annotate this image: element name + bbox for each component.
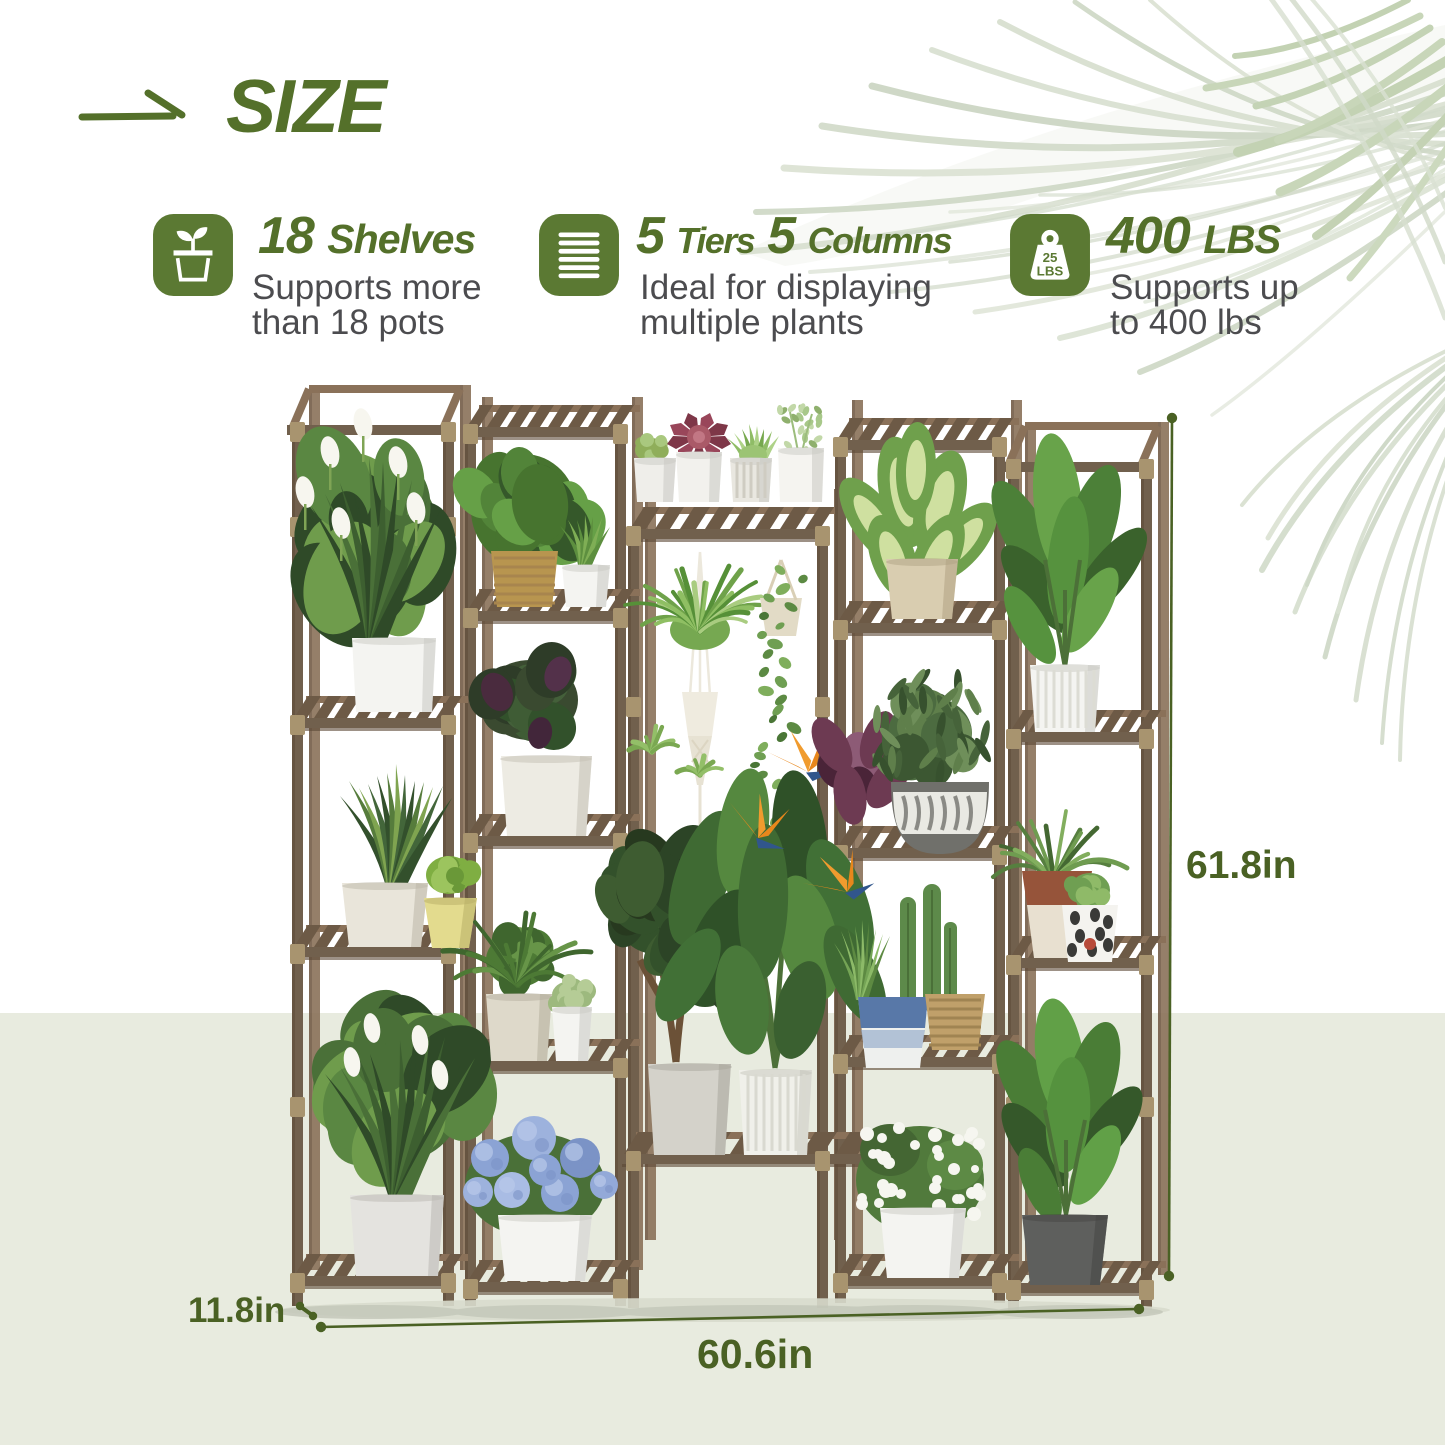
svg-text:61.8in: 61.8in	[1186, 844, 1297, 887]
svg-text:60.6in: 60.6in	[697, 1331, 813, 1377]
svg-text:11.8in: 11.8in	[188, 1291, 285, 1330]
